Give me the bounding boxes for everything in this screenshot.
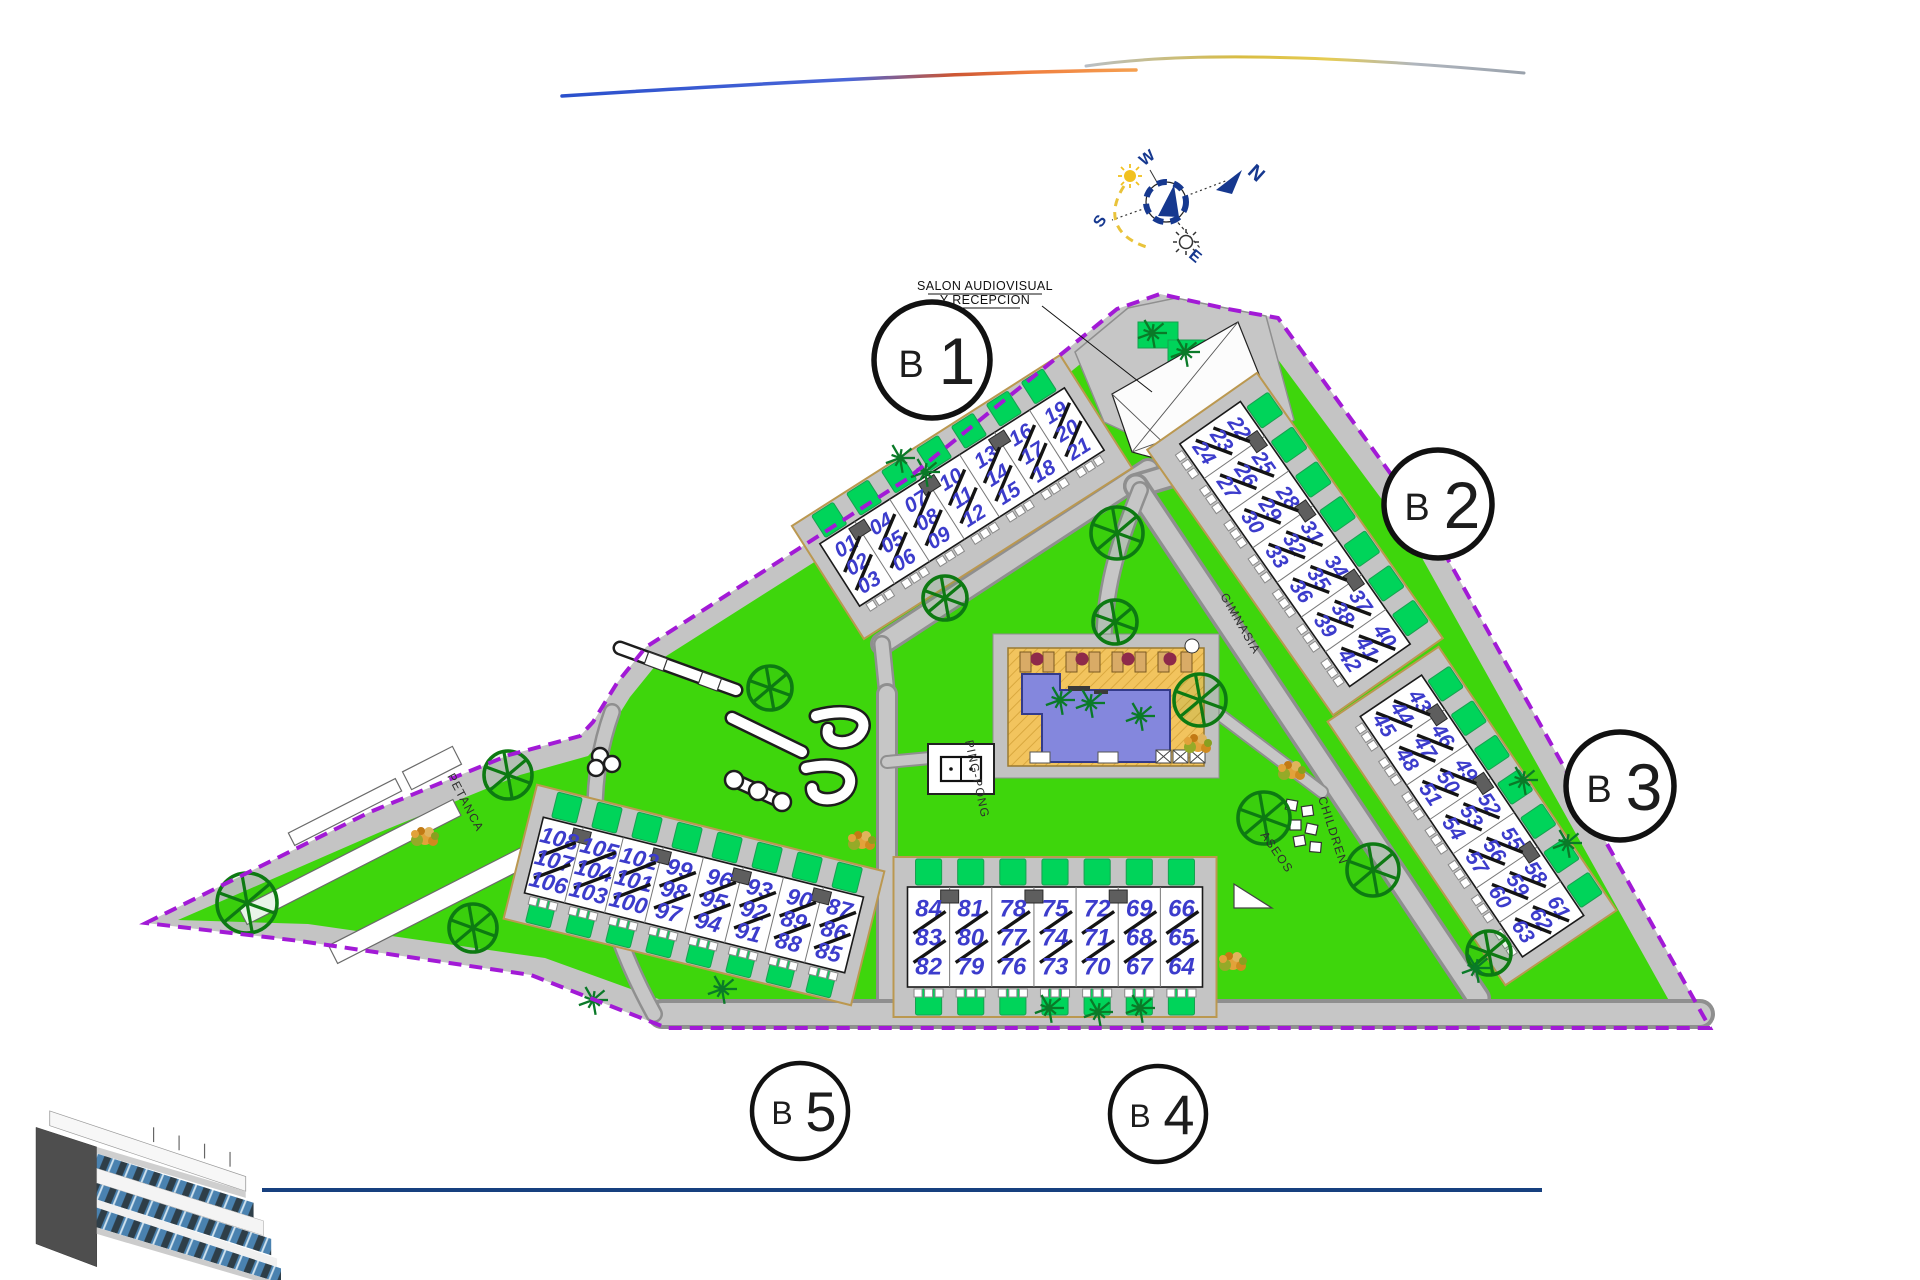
terrace: [538, 899, 548, 909]
badge-b3: B 3: [1566, 732, 1674, 840]
terrace: [925, 989, 933, 997]
garden-patch: [832, 862, 863, 893]
terrace: [1093, 989, 1101, 997]
badge-b2-letter: B: [1404, 487, 1429, 529]
unit-number-83: 83: [915, 925, 942, 952]
unit-number-78: 78: [1000, 896, 1027, 923]
pool-furniture: [1098, 752, 1118, 763]
terrace: [818, 969, 828, 979]
terrace: [914, 989, 922, 997]
unit-number-66: 66: [1168, 896, 1195, 923]
top-swoosh-right: [1086, 57, 1524, 73]
badge-b2: B 2: [1384, 450, 1492, 558]
terrace: [608, 916, 618, 926]
parasol-icon: [1122, 653, 1135, 666]
terrace: [708, 941, 718, 951]
terrace: [1051, 989, 1059, 997]
site-plan-page: 0102030405060708091011121314151617181920…: [0, 0, 1920, 1280]
tree-icon: [923, 576, 967, 620]
garden-patch: [752, 842, 783, 873]
stair-core: [1109, 890, 1127, 903]
unit-number-82: 82: [915, 954, 942, 981]
terrace: [1146, 989, 1154, 997]
garden-patch: [712, 832, 743, 863]
garden-patch: [958, 859, 984, 885]
badge-b2-number: 2: [1444, 468, 1481, 542]
tree-icon: [1174, 674, 1226, 726]
compass-s: S: [1090, 212, 1110, 231]
pool-furniture: [1030, 752, 1050, 763]
pool-table-icon: [1185, 639, 1199, 653]
tree-icon: [449, 904, 497, 952]
garden-patch: [916, 859, 942, 885]
unit-number-64: 64: [1168, 954, 1195, 981]
terrace: [998, 989, 1006, 997]
unit-number-79: 79: [957, 954, 984, 981]
logo-building: [36, 1111, 281, 1280]
garden-patch: [592, 802, 623, 833]
tree-icon: [1091, 507, 1143, 559]
terrace: [977, 989, 985, 997]
badge-b5: B 5: [752, 1063, 848, 1159]
reception-label-line1: SALON AUDIOVISUAL: [917, 279, 1053, 293]
tree-icon: [1347, 844, 1399, 896]
garden-patch: [792, 852, 823, 883]
compass: N W S E: [1090, 147, 1268, 267]
terrace: [1135, 989, 1143, 997]
terrace: [768, 956, 778, 966]
unit-number-69: 69: [1126, 896, 1153, 923]
badge-b1: B 1: [874, 302, 990, 418]
compass-n: N: [1243, 161, 1268, 187]
terrace: [618, 919, 628, 929]
terrace: [628, 921, 638, 931]
garden-patch: [1000, 859, 1026, 885]
unit-number-68: 68: [1126, 925, 1153, 952]
badge-b4-number: 4: [1163, 1083, 1194, 1146]
terrace: [1062, 989, 1070, 997]
tree-icon: [1093, 600, 1137, 644]
badge-b5-letter: B: [771, 1095, 792, 1131]
badge-b1-number: 1: [939, 324, 976, 398]
parasol-icon: [1076, 653, 1089, 666]
garden-patch: [1042, 859, 1068, 885]
play-circle: [749, 782, 767, 800]
badge-b3-number: 3: [1626, 750, 1663, 824]
compass-e: E: [1185, 247, 1204, 267]
badge-b3-letter: B: [1586, 769, 1611, 811]
unit-number-75: 75: [1042, 896, 1069, 923]
north-arrow-icon: [1216, 170, 1242, 194]
badge-b1-letter: B: [898, 344, 923, 386]
terrace: [935, 989, 943, 997]
terrace: [1019, 989, 1027, 997]
top-swoosh-left: [562, 70, 1136, 96]
stair-core: [1025, 890, 1043, 903]
unit-number-76: 76: [1000, 954, 1027, 981]
terrace: [568, 906, 578, 916]
garden-patch: [672, 822, 703, 853]
terrace: [778, 959, 788, 969]
terrace: [1104, 989, 1112, 997]
terrace: [1009, 989, 1017, 997]
tree-icon: [748, 666, 792, 710]
terrace: [967, 989, 975, 997]
unit-number-80: 80: [957, 925, 984, 952]
terrace: [668, 931, 678, 941]
badge-b5-number: 5: [805, 1080, 836, 1143]
unit-number-70: 70: [1084, 954, 1111, 981]
play-circle: [604, 756, 620, 772]
terrace: [956, 989, 964, 997]
terrace: [828, 971, 838, 981]
garden-patch: [1126, 859, 1152, 885]
site-plan-drawing: 0102030405060708091011121314151617181920…: [0, 0, 1920, 1280]
terrace: [578, 909, 588, 919]
badge-b4: B 4: [1110, 1066, 1206, 1162]
garden-patch: [1084, 859, 1110, 885]
terrace: [698, 939, 708, 949]
badge-b4-letter: B: [1129, 1098, 1150, 1134]
unit-number-65: 65: [1168, 925, 1195, 952]
terrace: [528, 896, 538, 906]
terrace: [1167, 989, 1175, 997]
parasol-icon: [1164, 653, 1177, 666]
unit-number-73: 73: [1042, 954, 1069, 981]
terrace: [658, 929, 668, 939]
terrace: [1125, 989, 1133, 997]
terrace: [808, 966, 818, 976]
unit-number-77: 77: [1000, 925, 1028, 952]
play-circle: [588, 760, 604, 776]
terrace: [728, 946, 738, 956]
play-circle: [773, 793, 791, 811]
garden-patch: [552, 792, 583, 823]
terrace: [738, 949, 748, 959]
unit-number-67: 67: [1126, 954, 1154, 981]
terrace: [1188, 989, 1196, 997]
terrace: [1083, 989, 1091, 997]
terrace: [588, 911, 598, 921]
terrace: [688, 936, 698, 946]
terrace: [788, 961, 798, 971]
play-circle: [725, 771, 743, 789]
garden-patch: [632, 812, 663, 843]
stair-core: [941, 890, 959, 903]
garden-patch: [1168, 859, 1194, 885]
compass-w: W: [1136, 147, 1159, 170]
terrace: [748, 951, 758, 961]
terrace: [548, 901, 558, 911]
terrace: [1177, 989, 1185, 997]
terrace: [648, 926, 658, 936]
unit-number-72: 72: [1084, 896, 1111, 923]
block-b4: 8483828180797877767574737271706968676665…: [894, 857, 1217, 1017]
parasol-icon: [1031, 653, 1044, 666]
sun-icon: [1118, 164, 1142, 188]
tree-icon: [484, 751, 532, 799]
